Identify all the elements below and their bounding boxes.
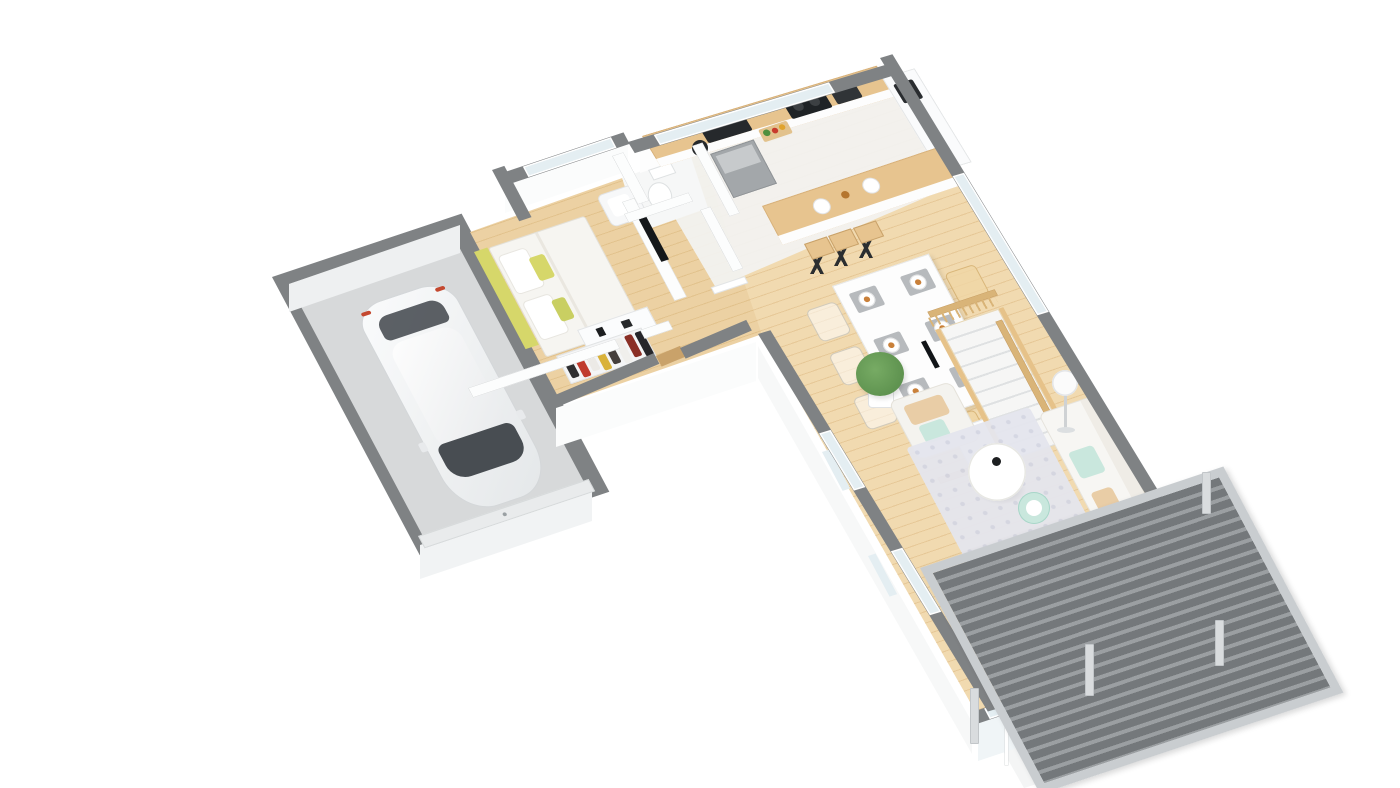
table-decor: [992, 457, 1001, 466]
coffee-table: [968, 443, 1026, 501]
island-plate: [861, 177, 882, 195]
decor-object: [595, 327, 606, 337]
pergola-post: [1202, 472, 1211, 514]
island-plate: [811, 197, 832, 215]
pergola-post: [1215, 620, 1224, 666]
sofa-cushion-mint: [1068, 445, 1107, 480]
floor-lamp-base: [1057, 427, 1075, 433]
side-table-mint: [1018, 492, 1050, 524]
floorplan-scene: [0, 0, 1400, 788]
tray: [1026, 500, 1042, 516]
floor-lamp-pole: [1064, 392, 1067, 430]
fruit: [762, 129, 772, 137]
plant: [856, 352, 904, 396]
pergola-post: [970, 688, 979, 744]
decor-object: [621, 319, 633, 329]
fruit: [771, 127, 780, 134]
place-setting: [900, 268, 937, 296]
bar-stool: [853, 228, 879, 258]
fruit: [778, 124, 787, 131]
bar-stool: [804, 244, 830, 274]
fridge-top: [716, 144, 761, 174]
island-food: [840, 190, 851, 200]
place-setting: [849, 285, 886, 313]
bar-stool: [828, 236, 854, 266]
pergola-post: [1085, 644, 1094, 696]
